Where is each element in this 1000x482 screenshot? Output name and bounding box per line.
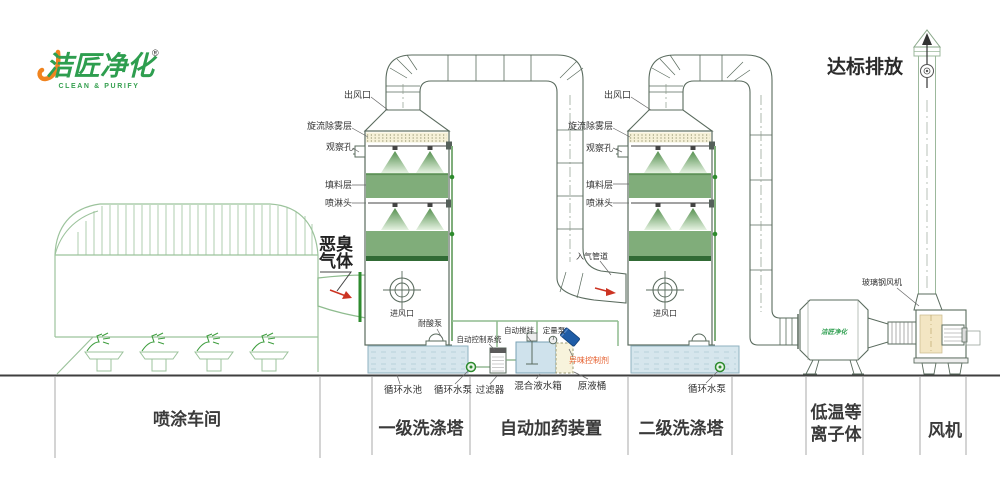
- spray-gun-icon: [197, 333, 220, 351]
- circ-pool-label: 循环水池: [384, 384, 423, 396]
- section-plasma-1: 低温等: [810, 402, 862, 422]
- t2-demister-label: 旋流除雾层: [568, 120, 613, 131]
- spray-gun-icon: [87, 333, 110, 351]
- registered-mark: ®: [152, 48, 159, 58]
- section-workshop: 喷涂车间: [153, 409, 221, 429]
- odor-agent-label: 异味控制剂: [569, 355, 609, 365]
- section-tower1: 一级洗涤塔: [379, 418, 465, 438]
- raw-barrel-label: 原液桶: [578, 380, 607, 392]
- t1-demister-label: 旋流除雾层: [307, 120, 352, 131]
- t1-viewport-label: 观察孔: [326, 141, 353, 152]
- filter-label: 过滤器: [476, 384, 505, 396]
- fiberglass-fan-label: 玻璃钢风机: [862, 277, 902, 287]
- device-legs: [803, 360, 864, 374]
- fiberglass-fan: [914, 294, 980, 374]
- t2-packing-label: 填料层: [586, 179, 613, 190]
- t2-outlet-label: 出风口: [604, 89, 631, 100]
- brand-logo: 洁匠净化 ® CLEAN & PURIFY: [40, 48, 159, 90]
- acid-pump-label: 耐酸泵: [418, 318, 442, 328]
- auto-control-label: 自动控制系统: [457, 334, 502, 344]
- mix-tank-label: 混合液水箱: [514, 380, 562, 392]
- odor-gas-label-1: 恶臭: [319, 234, 353, 254]
- plasma-device: 洁匠净化: [798, 300, 921, 374]
- spray-gun-icon: [142, 333, 165, 351]
- gas-inlet-pipe-label: 入气管道: [576, 251, 608, 261]
- exhaust-stack: [914, 30, 940, 294]
- auto-stir-label: 自动搅拌: [504, 325, 534, 335]
- odor-gas-label-2: 气体: [318, 251, 354, 271]
- process-diagram: 进风口: [0, 0, 1000, 482]
- section-tower2: 二级洗涤塔: [639, 418, 725, 438]
- emission-label: 达标排放: [827, 55, 904, 78]
- spray-workbenches: [85, 333, 288, 371]
- section-dosing: 自动加药装置: [500, 418, 602, 438]
- circ-pump1-label: 循环水泵: [434, 384, 473, 396]
- t2-viewport-label: 观察孔: [586, 142, 613, 153]
- scrub-tower-1: [353, 110, 454, 349]
- workshop-exhaust-duct: [318, 272, 366, 322]
- t1-sprayhead-label: 喷淋头: [325, 197, 352, 208]
- t1-packing-label: 填料层: [325, 179, 352, 190]
- t2-sprayhead-label: 喷淋头: [586, 197, 613, 208]
- workshop-building: [55, 204, 318, 374]
- diagram-drawing: 进风口: [0, 0, 1000, 482]
- circulation-tank-1: [368, 346, 490, 373]
- brand-tagline: CLEAN & PURIFY: [58, 83, 139, 90]
- section-fan: 风机: [928, 420, 962, 440]
- spray-gun-icon: [252, 333, 275, 351]
- fan-motor-icon: [942, 325, 964, 345]
- dosing-system: [452, 321, 618, 373]
- filter-cabinet-icon: [490, 348, 516, 373]
- circ-pump2-label: 循环水泵: [688, 383, 727, 395]
- t1-outlet-label: 出风口: [344, 89, 371, 100]
- circulation-tank-2: [631, 346, 739, 373]
- scrub-tower-2: [616, 110, 717, 349]
- brand-name: 洁匠净化: [46, 51, 158, 81]
- metering-pump-label: 定量泵: [543, 325, 566, 335]
- plasma-brand-label: 洁匠净化: [821, 328, 849, 336]
- section-plasma-2: 离子体: [811, 424, 863, 444]
